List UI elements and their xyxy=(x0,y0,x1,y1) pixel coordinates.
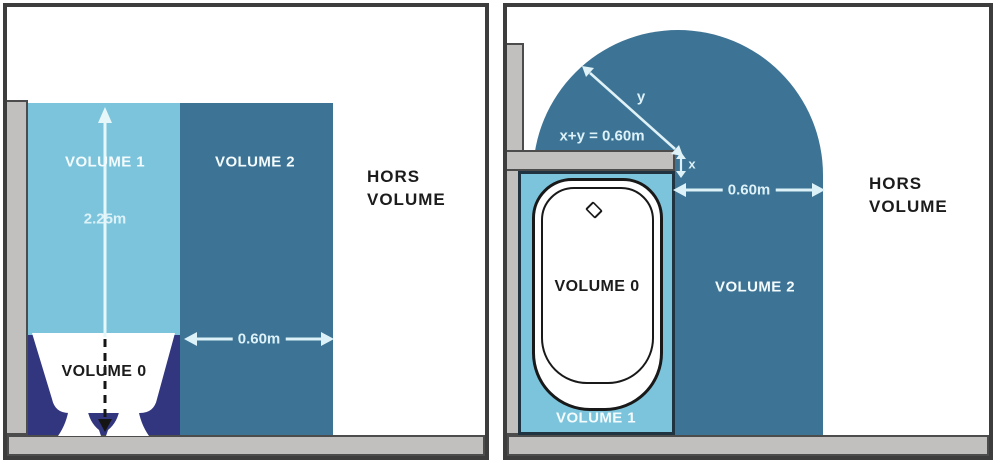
hors-volume-label: HORS VOLUME xyxy=(367,165,446,211)
volume1-label: VOLUME 1 xyxy=(65,154,145,171)
hors-volume-line2: VOLUME xyxy=(367,188,446,211)
volume0-label: VOLUME 0 xyxy=(62,363,147,381)
floor xyxy=(507,435,989,456)
equation-label: x+y = 0.60m xyxy=(559,128,644,145)
floor xyxy=(7,435,485,456)
width-dimension-value: 0.60m xyxy=(233,331,286,348)
hors-volume-line1: HORS xyxy=(869,172,948,195)
volume0-region xyxy=(28,335,180,435)
panel-plan-view: y x+y = 0.60m x 0.60m VOLUME 0 VOLUME 1 … xyxy=(503,3,993,460)
wall-left xyxy=(7,100,28,435)
hors-volume-line1: HORS xyxy=(367,165,446,188)
width-dimension-value: 0.60m xyxy=(723,182,776,199)
y-axis-label: y xyxy=(637,89,645,106)
volume2-label: VOLUME 2 xyxy=(715,279,795,296)
wall-shelf xyxy=(507,150,675,171)
diagram-stage: VOLUME 1 VOLUME 2 2.25m 0.60m VOLUME 0 H… xyxy=(0,0,996,463)
hors-volume-label: HORS VOLUME xyxy=(869,172,948,218)
volume1-label: VOLUME 1 xyxy=(556,410,636,427)
volume0-label: VOLUME 0 xyxy=(555,278,640,296)
hors-volume-line2: VOLUME xyxy=(869,195,948,218)
panel-side-view: VOLUME 1 VOLUME 2 2.25m 0.60m VOLUME 0 H… xyxy=(3,3,489,460)
volume2-label: VOLUME 2 xyxy=(215,154,295,171)
height-dimension-value: 2.25m xyxy=(84,211,127,228)
x-axis-label: x xyxy=(688,157,695,172)
